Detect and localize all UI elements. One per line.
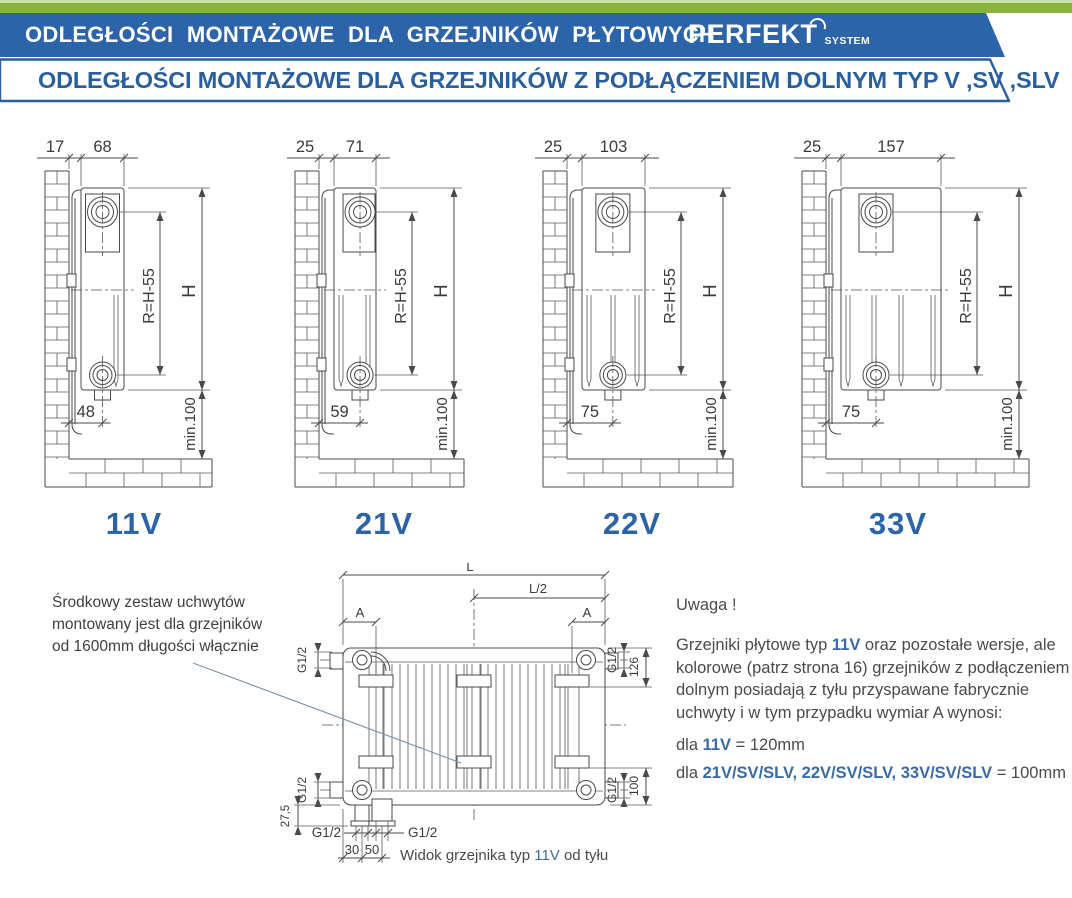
note-line: od 1600mm długości włącznie <box>52 636 302 658</box>
radiator-body <box>324 188 386 400</box>
radiator-rear-body <box>343 648 605 805</box>
rear-view-caption: Widok grzejnika typ 11V od tyłu <box>400 847 608 864</box>
dim-label: 30 <box>345 842 359 857</box>
dim-label: min.100 <box>703 397 720 450</box>
caption-type: 11V <box>534 847 560 864</box>
wall-bracket-rail <box>565 190 582 434</box>
rear-view-diagram: LL/2AAG1/2G1/227,5G1/2G1/23050G1/2126G1/… <box>270 563 670 878</box>
radiator-body <box>71 188 134 400</box>
dim-label: H <box>430 284 451 297</box>
note-line: Środkowy zestaw uchwytów <box>52 592 302 614</box>
dim-label: 27,5 <box>280 805 292 827</box>
dim-label: 75 <box>841 403 859 421</box>
radiator-body <box>831 188 951 400</box>
dim-label: 48 <box>77 403 95 421</box>
note-line: montowany jest dla grzejników <box>52 614 302 636</box>
dim-label: 75 <box>581 403 599 421</box>
radiator-side-view: 25157R=H-55Hmin.10075 <box>766 128 1031 496</box>
radiator-side-view: 25103R=H-55Hmin.10075 <box>507 128 757 496</box>
dim-label: 68 <box>93 138 111 156</box>
dim-label: H <box>995 284 1016 297</box>
diagram-column: 2571R=H-55Hmin.1005921V <box>260 128 508 542</box>
dim-label: 59 <box>330 403 348 421</box>
radiator-side-view: 2571R=H-55Hmin.10059 <box>259 128 509 496</box>
dim-label: 157 <box>877 138 905 156</box>
wall-bracket-rail <box>824 190 841 434</box>
note-type-emphasis: 11V <box>832 636 860 654</box>
dim-label: L <box>466 563 473 574</box>
note-dim-a-other: dla 21V/SV/SLV, 22V/SV/SLV, 33V/SV/SLV =… <box>676 762 1072 785</box>
catalog-page: ODLEGŁOŚCI MONTAŻOWE DLA GRZEJNIKÓW PŁYT… <box>0 0 1072 898</box>
brand-sub-name: SYSTEM <box>825 35 871 47</box>
note-paragraph: Grzejniki płytowe typ 11V oraz pozostałe… <box>676 634 1072 725</box>
dim-label: R=H-55 <box>393 268 410 324</box>
dim-label: 25 <box>296 138 314 156</box>
dim-label: R=H-55 <box>662 268 679 324</box>
dim-label: L/2 <box>529 581 547 596</box>
side-view-diagrams: 1768R=H-55Hmin.1004811V2571R=H-55Hmin.10… <box>8 128 1040 542</box>
dim-label: A <box>583 605 592 620</box>
radiator-side-view: 1768R=H-55Hmin.10048 <box>9 128 259 496</box>
dim-label: H <box>699 284 720 297</box>
dim-label: 103 <box>600 138 628 156</box>
dim-label: G1/2 <box>605 647 619 673</box>
dim-label: 126 <box>627 657 641 677</box>
radiator-type-label: 22V <box>603 506 661 542</box>
note-text: = 100mm <box>992 764 1066 782</box>
dim-label: G1/2 <box>312 825 341 840</box>
radiator-body <box>572 188 655 400</box>
note-type-emphasis: 21V/SV/SLV, 22V/SV/SLV, 33V/SV/SLV <box>703 764 993 782</box>
brand-logo: PERFEKT SYSTEM <box>688 20 870 50</box>
page-subtitle: ODLEGŁOŚCI MONTAŻOWE DLA GRZEJNIKÓW Z PO… <box>38 67 998 94</box>
top-green-strip <box>0 0 1072 13</box>
note-heading: Uwaga ! <box>676 594 1072 617</box>
header-banner: ODLEGŁOŚCI MONTAŻOWE DLA GRZEJNIKÓW PŁYT… <box>0 13 1006 57</box>
note-text: dla <box>676 736 703 754</box>
caption-text: Widok grzejnika typ <box>400 847 534 864</box>
dim-label: min.100 <box>434 397 451 450</box>
note-text: = 120mm <box>731 736 805 754</box>
dim-label: 25 <box>802 138 820 156</box>
page-title: ODLEGŁOŚCI MONTAŻOWE DLA GRZEJNIKÓW PŁYT… <box>0 22 715 48</box>
radiator-rear-view-svg: LL/2AAG1/2G1/227,5G1/2G1/23050G1/2126G1/… <box>270 563 670 873</box>
note-text: dla <box>676 764 703 782</box>
radiator-type-label: 11V <box>106 506 162 542</box>
dim-label: R=H-55 <box>958 268 975 324</box>
dim-label: 50 <box>365 842 379 857</box>
radiator-type-label: 33V <box>869 506 927 542</box>
brand-name: PERFEKT <box>688 20 818 50</box>
dim-label: 71 <box>346 138 364 156</box>
dim-label: G1/2 <box>408 825 437 840</box>
radiator-type-label: 21V <box>355 506 413 542</box>
note-uwaga: Uwaga ! Grzejniki płytowe typ 11V oraz p… <box>676 594 1072 784</box>
dim-label: R=H-55 <box>141 268 158 324</box>
dim-label: 17 <box>46 138 64 156</box>
dim-label: H <box>178 284 199 297</box>
note-dim-a-11v: dla 11V = 120mm <box>676 734 1072 757</box>
dim-label: A <box>356 605 365 620</box>
diagram-column: 25103R=H-55Hmin.1007522V <box>508 128 756 542</box>
diagram-column: 25157R=H-55Hmin.1007533V <box>756 128 1040 542</box>
dim-label: 25 <box>544 138 562 156</box>
dim-label: G1/2 <box>605 777 619 803</box>
wall-bracket-rail <box>317 190 334 434</box>
dim-label: 100 <box>627 776 641 796</box>
diagram-column: 1768R=H-55Hmin.1004811V <box>8 128 260 542</box>
dim-label: min.100 <box>999 397 1016 450</box>
caption-text: od tyłu <box>560 847 608 864</box>
note-center-brackets: Środkowy zestaw uchwytów montowany jest … <box>52 592 302 658</box>
note-text: Grzejniki płytowe typ <box>676 636 832 654</box>
note-type-emphasis: 11V <box>703 736 731 754</box>
dim-label: min.100 <box>182 397 199 450</box>
